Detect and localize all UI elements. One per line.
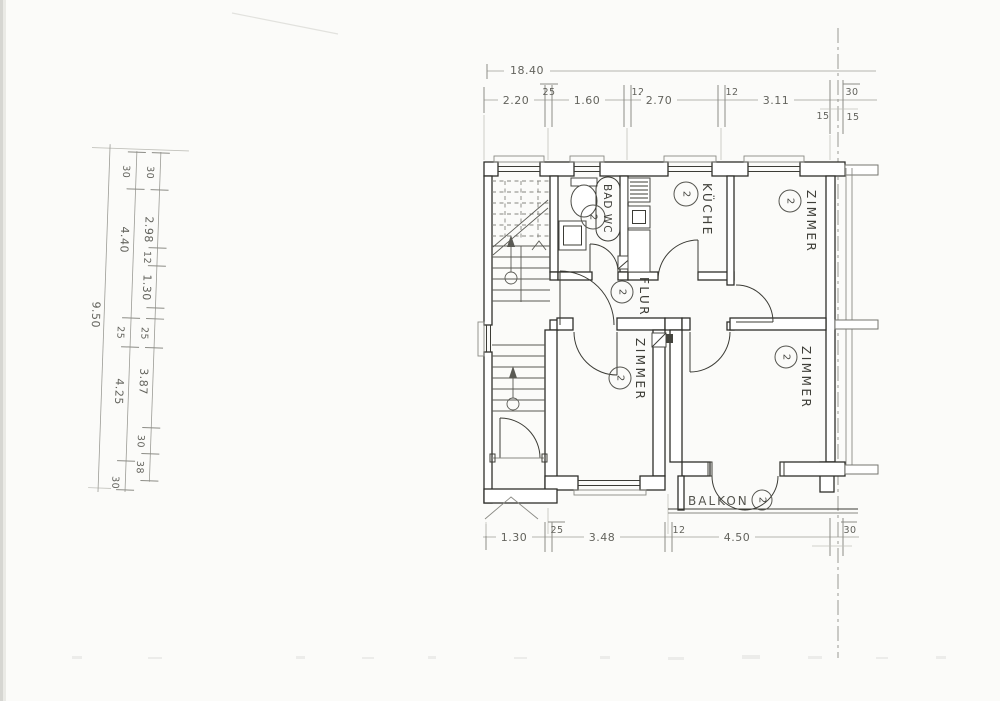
dim-top-seg-5: 12 bbox=[725, 87, 738, 98]
dim-left-inner-1: 2.98 bbox=[142, 216, 156, 243]
dim-top-sub-left: 15 bbox=[816, 111, 829, 122]
occupancy-number: 2 bbox=[785, 198, 796, 204]
dim-left-outer-3: 4.25 bbox=[112, 378, 126, 405]
room-label: FLUR bbox=[637, 277, 651, 317]
dim-left-outer-1: 4.40 bbox=[117, 226, 131, 253]
dim-left-inner-0: 30 bbox=[144, 166, 155, 179]
occupancy-number: 2 bbox=[781, 354, 792, 360]
dim-top-seg-2: 1.60 bbox=[574, 94, 601, 107]
dim-bottom-seg-2: 3.48 bbox=[589, 531, 616, 544]
scanned-floor-plan-page: 9.50 30 4.40 25 4.25 30 30 2.98 12 1.30 … bbox=[0, 0, 1000, 701]
dim-left-outer-0: 30 bbox=[120, 165, 131, 178]
kitchen-unit bbox=[628, 178, 650, 272]
balcony-rail bbox=[678, 476, 684, 510]
dim-top-seg-4: 2.70 bbox=[646, 94, 673, 107]
occupancy-number: 2 bbox=[681, 191, 692, 197]
room-label: ZIMMER bbox=[799, 346, 813, 409]
dim-top-seg-6: 3.11 bbox=[763, 94, 790, 107]
occupancy-number: 2 bbox=[615, 375, 626, 381]
scan-edge-strip bbox=[0, 0, 3, 701]
occupancy-number: 2 bbox=[588, 214, 599, 220]
room-label: ZIMMER bbox=[633, 338, 647, 401]
dim-left-inner-7: 38 bbox=[134, 461, 145, 474]
dim-left-outer-4: 30 bbox=[109, 476, 120, 489]
dim-bottom-seg-4: 4.50 bbox=[724, 531, 751, 544]
dim-top-seg-1: 25 bbox=[542, 87, 555, 98]
dim-bottom-seg-1: 25 bbox=[550, 525, 563, 536]
dim-left-inner-2: 12 bbox=[141, 251, 152, 264]
dim-top-sub-right: 15 bbox=[846, 112, 859, 123]
room-label: ZIMMER bbox=[804, 190, 818, 253]
dim-left-inner-6: 30 bbox=[135, 435, 146, 448]
occupancy-number: 2 bbox=[617, 289, 628, 295]
room-label: KÜCHE bbox=[700, 183, 716, 237]
dim-left-inner-5: 3.87 bbox=[136, 368, 150, 395]
kitchen-counter-icon bbox=[628, 230, 650, 272]
dim-left-inner-3: 1.30 bbox=[140, 274, 154, 301]
stove-icon bbox=[628, 206, 650, 228]
dim-left-inner-4: 25 bbox=[138, 327, 149, 340]
dim-left-outer-2: 25 bbox=[114, 326, 125, 339]
paper-background bbox=[0, 0, 1000, 701]
room-label: BAD WC bbox=[601, 184, 613, 234]
dim-bottom-seg-0: 1.30 bbox=[501, 531, 528, 544]
dim-left-overall: 9.50 bbox=[89, 301, 103, 328]
wc-icon bbox=[571, 185, 597, 217]
dim-top-seg-7: 30 bbox=[845, 87, 858, 98]
stairwell-south-wall bbox=[484, 489, 557, 503]
floor-plan-drawing: 9.50 30 4.40 25 4.25 30 30 2.98 12 1.30 … bbox=[0, 0, 1000, 701]
dim-bottom-seg-3: 12 bbox=[672, 525, 685, 536]
dim-top-seg-0: 2.20 bbox=[503, 94, 530, 107]
room-label: BALKON bbox=[688, 494, 749, 508]
dim-bottom-seg-5: 30 bbox=[843, 525, 856, 536]
dim-top-overall: 18.40 bbox=[510, 64, 544, 77]
occupancy-number: 2 bbox=[757, 497, 768, 503]
scan-edge-strip-light bbox=[3, 0, 6, 701]
